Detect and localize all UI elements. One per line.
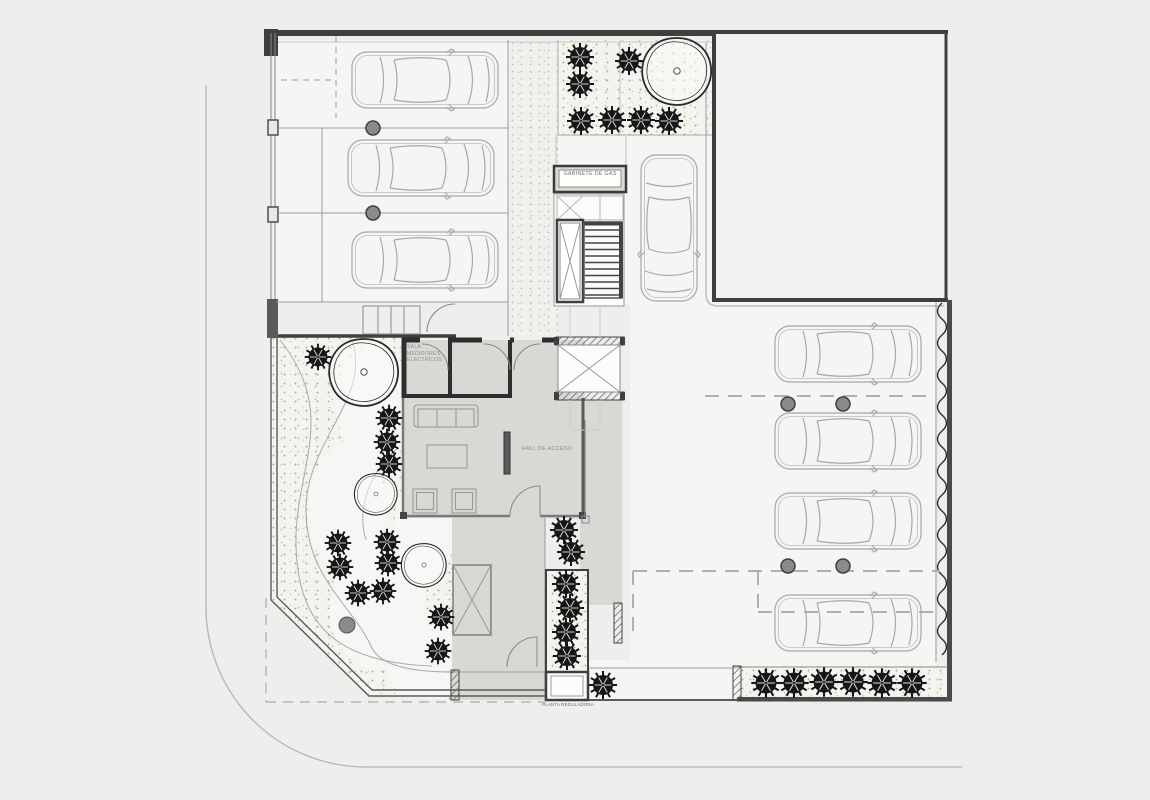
meter-room-label: SALA MEDIDORES ELECTRICOS xyxy=(407,344,453,364)
floor-plan: GABINETE DE GAS SALA MEDIDORES ELECTRICO… xyxy=(0,0,1150,800)
meter-room-label-line3: ELECTRICOS xyxy=(407,357,453,364)
column-dot xyxy=(366,206,380,220)
fence-post xyxy=(267,299,278,338)
wall-hatch xyxy=(451,670,459,700)
column-dot xyxy=(836,397,850,411)
hall-furniture xyxy=(413,405,478,513)
meter-room-label-line1: SALA xyxy=(407,344,453,351)
wall-hatch xyxy=(733,666,741,700)
door-arc xyxy=(510,486,540,516)
reception-desk xyxy=(504,432,510,474)
column-dot xyxy=(366,121,380,135)
column-dot xyxy=(339,617,355,633)
regulator-label: PLANTA REGULADORA xyxy=(527,702,609,707)
car xyxy=(775,410,921,472)
tree-canopy xyxy=(642,38,711,105)
hall-label: HALL DE ACCESO xyxy=(502,446,592,452)
car xyxy=(775,490,921,552)
right-parking-stalls xyxy=(633,396,940,640)
column-dot xyxy=(781,559,795,573)
elevator-shaft xyxy=(554,337,625,400)
hedge-wavy-line xyxy=(938,303,947,655)
car xyxy=(775,323,921,385)
car xyxy=(352,49,498,111)
tree-canopy xyxy=(401,544,446,588)
wall-hatch xyxy=(614,603,622,643)
fence-post xyxy=(268,207,278,222)
car xyxy=(775,592,921,654)
hall xyxy=(400,398,586,519)
tree-canopy xyxy=(354,474,397,515)
south-walkway xyxy=(451,420,622,700)
column-dot xyxy=(781,397,795,411)
plan-linework xyxy=(0,0,1150,800)
gas-cabinet xyxy=(554,135,626,192)
meter-room-label-line2: MEDIDORES xyxy=(407,351,453,358)
property-dashed-line xyxy=(266,598,545,702)
neighbor-building xyxy=(706,30,948,306)
door-arc xyxy=(427,304,455,332)
column-dot xyxy=(836,559,850,573)
fence-post xyxy=(268,120,278,135)
car xyxy=(348,137,494,199)
car xyxy=(638,155,700,301)
garden-north-wall xyxy=(278,304,456,336)
car xyxy=(352,229,498,291)
door-arc xyxy=(507,637,537,667)
gas-cabinet-label: GABINETE DE GAS xyxy=(557,171,623,177)
tree-canopy xyxy=(329,339,398,406)
west-fence xyxy=(267,33,278,338)
